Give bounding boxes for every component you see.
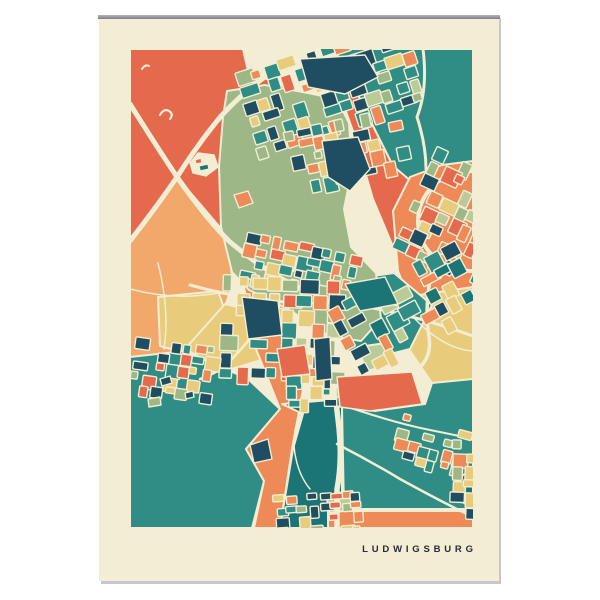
poster-title-text: LUDWIGSBURG xyxy=(362,544,477,555)
map-poster: LUDWIGSBURG xyxy=(99,15,499,581)
poster-top-edge xyxy=(98,15,500,19)
city-map-artwork xyxy=(130,49,473,528)
page-background: LUDWIGSBURG xyxy=(0,0,600,600)
city-map-svg xyxy=(130,49,473,528)
poster-title: LUDWIGSBURG xyxy=(362,544,473,555)
